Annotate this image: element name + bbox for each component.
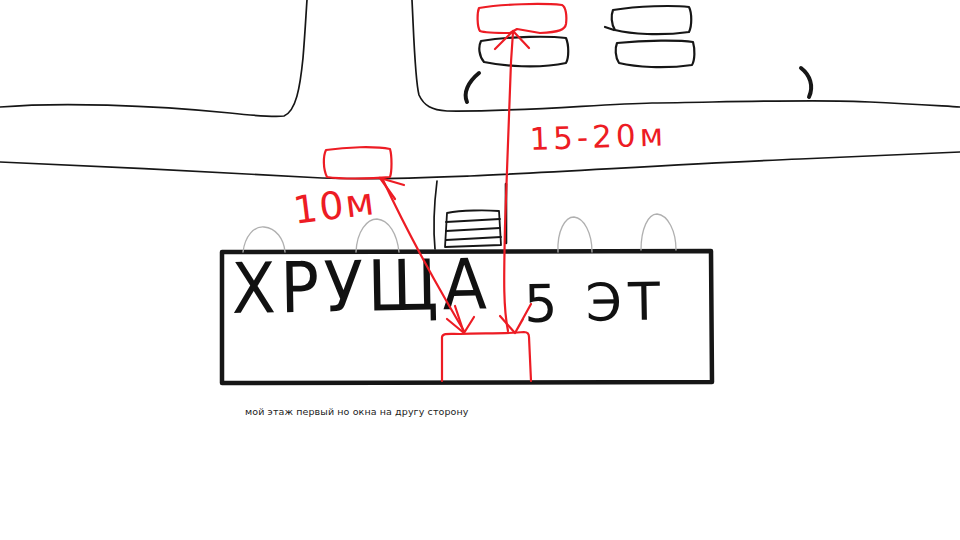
striped-structure-line-1 <box>446 219 500 222</box>
road-edges <box>0 0 960 179</box>
hand-drawn-map: ХРУЩА5 ЭТ 10м 15-20м мой этаж первый но … <box>0 0 960 540</box>
tree-arc-3 <box>558 217 592 252</box>
paren-mark-left <box>466 73 479 102</box>
arrow-far-shaft <box>504 32 513 331</box>
kiosk-box-right-top <box>612 6 692 34</box>
target-box-near <box>324 147 392 178</box>
apartment-box <box>442 332 531 381</box>
road-bottom-edge <box>0 152 960 179</box>
main-building-outline <box>222 251 712 383</box>
striped-structure-line-3 <box>446 237 501 240</box>
striped-structure <box>445 210 501 247</box>
arrow-near-head-top <box>380 178 404 199</box>
tree-arc-4 <box>641 214 676 250</box>
tree-arc-1 <box>243 227 285 252</box>
road-top-left-edge <box>0 0 307 116</box>
arrow-to-bus-stop <box>380 178 474 333</box>
target-box-far <box>478 4 567 33</box>
red-ink-strokes <box>324 4 566 381</box>
driveway-left-line <box>434 181 437 249</box>
sketch-canvas <box>0 0 960 540</box>
kiosk-box-right-bottom <box>616 41 695 68</box>
striped-structure-line-2 <box>446 228 500 231</box>
arrow-near-shaft <box>383 180 464 331</box>
arrow-to-far-building <box>495 31 531 333</box>
road-top-right-edge <box>412 0 960 111</box>
tree-arc-2 <box>356 219 399 252</box>
paren-mark-right <box>801 68 811 97</box>
ink-strokes <box>0 0 960 383</box>
